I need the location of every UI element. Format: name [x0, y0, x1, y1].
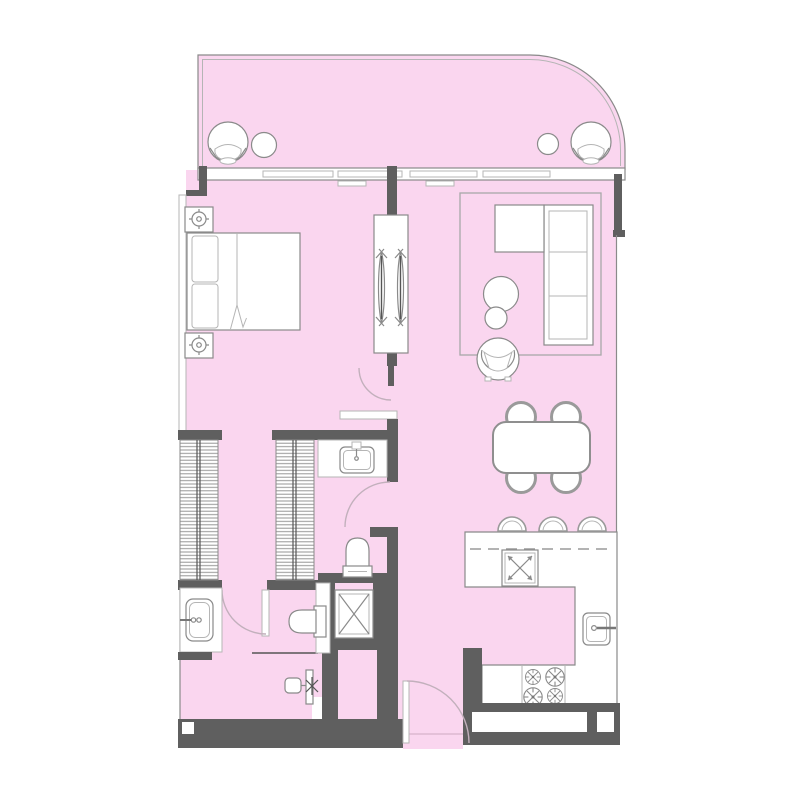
northwest-corner-wall-2 — [186, 190, 202, 196]
floor-plan-drawing — [0, 0, 800, 800]
bathroom-east-wall — [387, 419, 398, 482]
armchair — [477, 338, 519, 381]
wardrobe-right — [276, 440, 314, 580]
cased-opening-header — [340, 411, 397, 419]
side-table — [252, 133, 277, 158]
side-table — [538, 134, 559, 155]
wall-stub — [370, 527, 398, 537]
south-wall-west — [178, 719, 403, 748]
panel-track — [426, 181, 454, 186]
shaft-east-wall — [377, 650, 398, 720]
sofa-body — [544, 205, 593, 345]
closet-wall-cap — [178, 430, 222, 440]
glass-panel — [263, 171, 333, 177]
glass-panel — [410, 171, 477, 177]
east-wall-stub — [613, 230, 625, 237]
wall-niche — [472, 712, 587, 732]
entry-jamb-wall — [463, 648, 482, 707]
east-wall-upper — [614, 174, 622, 234]
burner — [548, 689, 563, 704]
glass-panel — [483, 171, 550, 177]
panel-track — [338, 181, 366, 186]
burner — [526, 670, 541, 685]
wall-niche — [597, 712, 614, 732]
nesting-table — [485, 307, 507, 329]
shaft-west-wall — [322, 650, 338, 720]
shower-south-wall — [322, 638, 398, 650]
window-mullion-wall — [387, 166, 397, 184]
bedroom-door-leaf — [388, 366, 394, 386]
burner — [546, 668, 564, 686]
shower — [335, 590, 373, 638]
closet-wall-cap — [267, 580, 318, 590]
sofa-chaise — [495, 205, 544, 252]
pillow — [192, 284, 218, 328]
floor-plan-page — [0, 0, 800, 800]
coffee-table — [484, 277, 519, 312]
floor-areas — [180, 55, 625, 749]
closet-door-leaf — [262, 590, 269, 636]
toilet-wc — [343, 538, 372, 577]
wardrobe-left — [180, 440, 218, 580]
faucet — [352, 442, 361, 449]
pillow — [192, 236, 218, 282]
wall-stub — [178, 652, 212, 660]
bathroom-north-wall — [272, 430, 398, 440]
wall-niche — [182, 722, 194, 734]
dining-table — [493, 422, 590, 473]
entrance-door-leaf — [403, 681, 409, 743]
